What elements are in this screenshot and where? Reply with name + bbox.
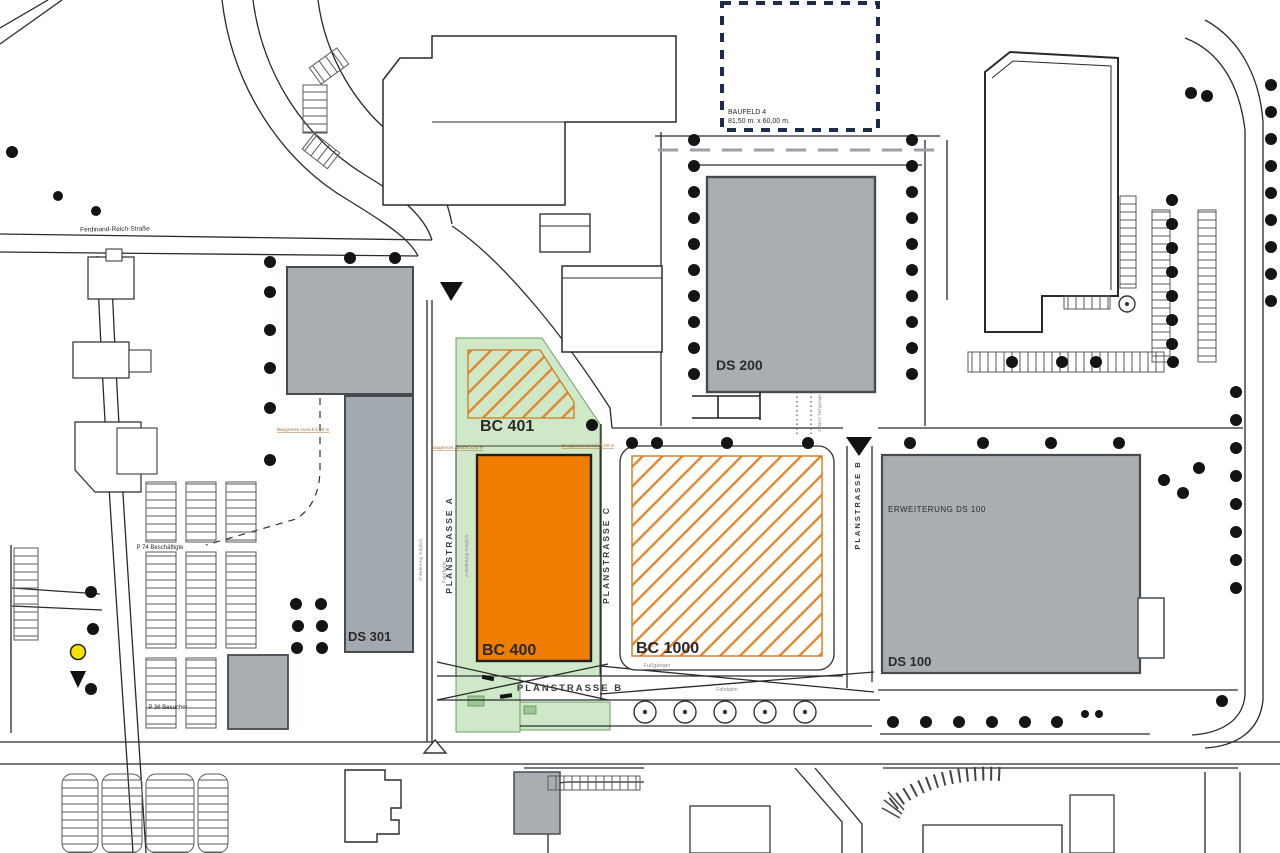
site-plan-canvas: BC 401 BC 400 BC 1000 DS 200 DS 301 DS 1… <box>0 0 1280 853</box>
building-ds301 <box>345 396 413 652</box>
label-fahrbahn-b: Fahrbahn <box>716 687 738 693</box>
label-bc401: BC 401 <box>480 418 534 435</box>
label-planstrasse-b-horizontal: PLANSTRASSE B <box>517 683 623 694</box>
building-top-center <box>383 36 676 205</box>
label-anlieferung-1: Anlieferung möglich <box>418 539 424 581</box>
building-ds100 <box>882 455 1140 673</box>
plot-bc1000 <box>632 456 822 656</box>
building-gray-bottom-left <box>228 655 288 729</box>
label-ds100: DS 100 <box>888 654 931 669</box>
fan-ticks <box>882 774 1002 818</box>
label-planstrasse-b-vertical: PLANSTRASSE B <box>853 460 862 549</box>
building-top-right <box>985 52 1118 332</box>
site-plan: BC 401 BC 400 BC 1000 DS 200 DS 301 DS 1… <box>0 0 1280 853</box>
label-p36: P 36 Besucher <box>148 705 187 711</box>
building-mid <box>562 266 662 352</box>
label-baugrenze-2: Baugrenze zurück 5,00 m <box>562 443 615 448</box>
label-baufeld4-dim: 81,50 m. x 60,00 m. <box>728 118 790 125</box>
label-fussgaenger: Fußgänger <box>644 663 671 669</box>
label-bc400: BC 400 <box>482 642 536 659</box>
building-gray-square <box>287 267 413 394</box>
label-anlieferung-2: Anlieferung möglich <box>464 535 470 577</box>
label-p74: P 74 Beschäftigte <box>137 545 185 551</box>
label-baufeld4: BAUFELD 4 <box>728 109 766 116</box>
building-bottom-notched <box>345 770 401 842</box>
label-baugrenze-1: Baugrenze zurück 5,00 m <box>431 445 484 450</box>
label-ds301: DS 301 <box>348 629 391 644</box>
plot-bc400 <box>477 455 591 661</box>
label-erweiterung-ds100: ERWEITERUNG DS 100 <box>888 505 986 514</box>
plot-bc401 <box>468 350 574 418</box>
label-ds200: DS 200 <box>716 357 763 373</box>
label-bc1000: BC 1000 <box>636 640 699 657</box>
label-planstrasse-c: PLANSTRASSE C <box>601 506 611 604</box>
label-ferdinand-reich-strasse: Ferdinand-Reich-Straße <box>80 225 150 233</box>
building-left-2 <box>73 342 129 378</box>
label-fahrbahn-a: Fahrbahn <box>442 561 448 583</box>
label-baugrenze-3: Baugrenze zurück 5,00 m <box>277 427 330 432</box>
building-bottom-mid <box>690 806 770 853</box>
yellow-marker <box>71 645 86 660</box>
arrow-planstrasse-a <box>440 282 463 301</box>
building-left-1 <box>88 257 134 299</box>
arrow-left <box>70 671 86 688</box>
building-bottom-right-small <box>1070 795 1114 853</box>
building-small-1 <box>540 214 590 252</box>
label-zufahrt-tiefgarage: Zufahrt Tiefgarage <box>817 394 822 432</box>
arrow-planstrasse-b <box>846 437 872 456</box>
